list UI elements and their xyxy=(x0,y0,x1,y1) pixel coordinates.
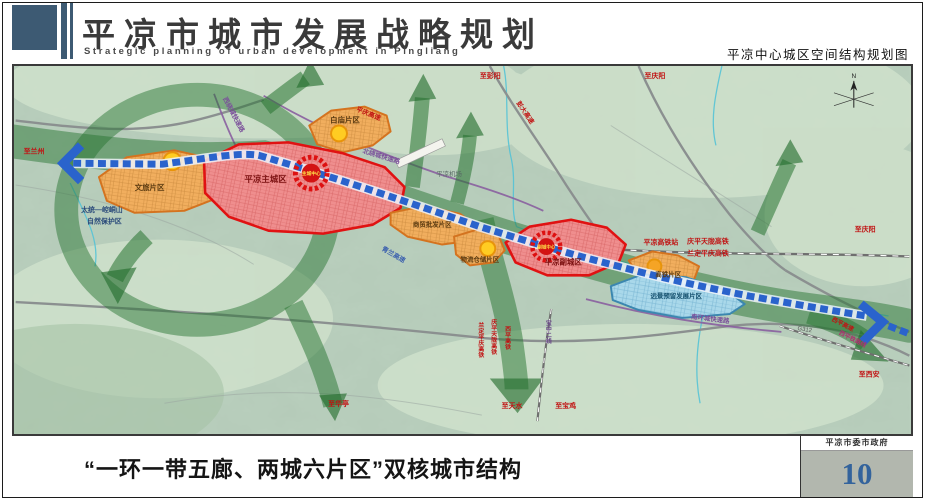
logo-bar-icon xyxy=(61,3,67,59)
header: 平凉市城市发展战略规划 Strategic planning of urban … xyxy=(0,0,925,63)
label-to-baoji: 至宝鸡 xyxy=(555,401,576,410)
label-to-tianshui: 至天水 xyxy=(502,401,524,410)
label-to-xian: 至西安 xyxy=(859,369,880,378)
zone-label-wuliu: 物流仓储片区 xyxy=(461,254,500,263)
zone-label-gaotie: 高铁片区 xyxy=(655,269,681,278)
label-airport: 平凉机场 xyxy=(436,169,462,178)
label-to-huating: 至华亭 xyxy=(328,399,349,408)
label-to-qingyang-top: 至庆阳 xyxy=(645,71,666,80)
label-baozhong-line: 宝中二线 xyxy=(544,319,551,345)
zone-label-yuanjing: 远景预留发展片区 xyxy=(650,291,702,300)
footer-caption: “一环一带五廊、两城六片区”双核城市结构 xyxy=(84,452,522,484)
sub-center-label: 副城中心 xyxy=(537,243,555,250)
zone-label-wenlv: 文旅片区 xyxy=(135,182,165,192)
label-qptl-hsr: 庆平天陇高铁 xyxy=(686,237,729,246)
planning-map: 主城中心 副城中心 文旅片区 白庙片区 平凉主城区 商贸批发片区 物流仓储片区 … xyxy=(14,66,911,434)
label-to-lanzhou: 至兰州 xyxy=(24,146,45,155)
page-number: 10 xyxy=(842,456,873,491)
zone-label-baimiao: 白庙片区 xyxy=(330,115,360,125)
stamp-box: 平凉市委市政府 10 xyxy=(800,436,913,497)
label-to-pengyang: 至彭阳 xyxy=(480,71,501,80)
footer: “一环一带五廊、两城六片区”双核城市结构 平凉市委市政府 10 xyxy=(12,436,913,497)
page-subtitle-en: Strategic planning of urban development … xyxy=(84,46,460,57)
org-label: 平凉市委市政府 xyxy=(801,436,913,451)
map-frame: 主城中心 副城中心 文旅片区 白庙片区 平凉主城区 商贸批发片区 物流仓储片区 … xyxy=(12,64,913,436)
zone-label-shangmao: 商贸批发片区 xyxy=(413,220,452,229)
label-nature-reserve-2: 自然保护区 xyxy=(87,217,122,226)
label-to-qingyang-right: 至庆阳 xyxy=(855,225,876,234)
label-xiping-hsr-vertical: 西平高铁 xyxy=(504,325,511,351)
logo-bar-icon xyxy=(70,3,73,59)
page-number-box: 10 xyxy=(801,451,913,497)
planning-poster: 平凉市城市发展战略规划 Strategic planning of urban … xyxy=(0,0,925,500)
label-ldpq-hsr: 兰定平庆高铁 xyxy=(687,248,729,257)
label-nature-reserve-1: 太统—崆峒山 xyxy=(80,205,123,214)
main-center-label: 主城中心 xyxy=(302,170,321,177)
compass-n-label: N xyxy=(851,73,856,80)
zone-label-zhucheng: 平凉主城区 xyxy=(245,174,288,184)
map-caption: 平凉中心城区空间结构规划图 xyxy=(727,44,909,63)
label-hsr-station: 平凉高铁站 xyxy=(644,238,679,247)
logo-square xyxy=(12,5,57,50)
zone-label-fucheng: 平凉副城区 xyxy=(545,256,583,266)
